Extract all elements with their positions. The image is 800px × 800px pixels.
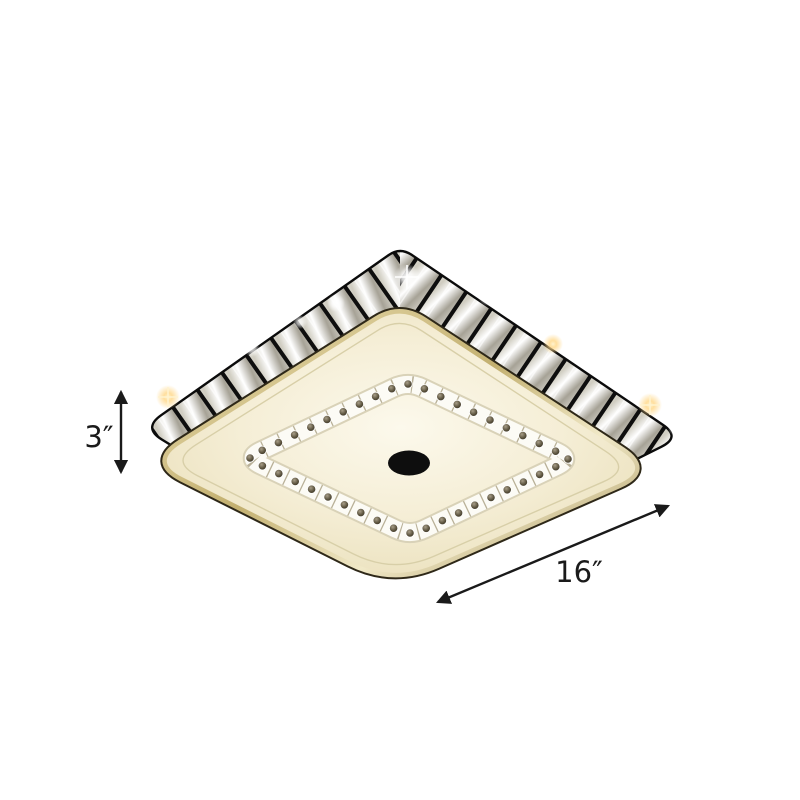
sparkle-glint bbox=[668, 420, 684, 436]
crystal-dot bbox=[275, 469, 283, 477]
width-dimension-label: 16″ bbox=[555, 555, 603, 589]
ceiling-light-fixture bbox=[120, 230, 700, 600]
crystal-dot bbox=[324, 493, 332, 501]
sparkle-glint bbox=[327, 294, 345, 312]
crystal-dot bbox=[437, 392, 445, 400]
crystal-dot bbox=[502, 424, 510, 432]
height-dimension: 3″ bbox=[84, 392, 121, 472]
crystal-dot bbox=[519, 431, 527, 439]
crystal-dot bbox=[438, 516, 446, 524]
sparkle-glint bbox=[478, 286, 498, 306]
crystal-dot bbox=[503, 486, 511, 494]
crystal-dot bbox=[552, 463, 560, 471]
crystal-dot bbox=[469, 408, 477, 416]
center-canopy-cap bbox=[388, 451, 430, 476]
crystal-dot bbox=[246, 454, 254, 462]
height-dimension-label: 3″ bbox=[84, 420, 113, 454]
crystal-dot bbox=[454, 509, 462, 517]
crystal-dot bbox=[339, 408, 347, 416]
crystal-dot bbox=[406, 529, 414, 537]
crystal-dot bbox=[340, 501, 348, 509]
crystal-dot bbox=[564, 455, 572, 463]
sparkle-glint bbox=[244, 341, 260, 357]
crystal-dot bbox=[371, 392, 379, 400]
sparkle-glint bbox=[543, 334, 563, 354]
crystal-dot bbox=[258, 462, 266, 470]
crystal-dot bbox=[274, 438, 282, 446]
crystal-dot bbox=[355, 400, 363, 408]
crystal-dot bbox=[290, 431, 298, 439]
crystal-dot bbox=[388, 385, 396, 393]
crystal-dot bbox=[551, 447, 559, 455]
crystal-dot bbox=[471, 501, 479, 509]
crystal-dot bbox=[373, 516, 381, 524]
crystal-dot bbox=[535, 439, 543, 447]
crystal-dot bbox=[357, 508, 365, 516]
crystal-dot bbox=[453, 400, 461, 408]
crystal-dot bbox=[535, 470, 543, 478]
crystal-dot bbox=[404, 380, 412, 388]
crystal-dot bbox=[307, 485, 315, 493]
crystal-dot bbox=[258, 446, 266, 454]
product-photo-canvas: 3″ 16″ bbox=[0, 0, 800, 800]
crystal-dot bbox=[519, 478, 527, 486]
crystal-dot bbox=[486, 416, 494, 424]
sparkle-glint bbox=[590, 360, 606, 376]
ceiling-light-product-photo: 3″ 16″ bbox=[0, 0, 800, 800]
crystal-dot bbox=[307, 423, 315, 431]
crystal-dot bbox=[422, 524, 430, 532]
crystal-dot bbox=[291, 477, 299, 485]
crystal-dot bbox=[420, 385, 428, 393]
crystal-dot bbox=[323, 415, 331, 423]
crystal-dot bbox=[487, 493, 495, 501]
crystal-dot bbox=[389, 524, 397, 532]
sparkle-glint bbox=[293, 315, 307, 329]
